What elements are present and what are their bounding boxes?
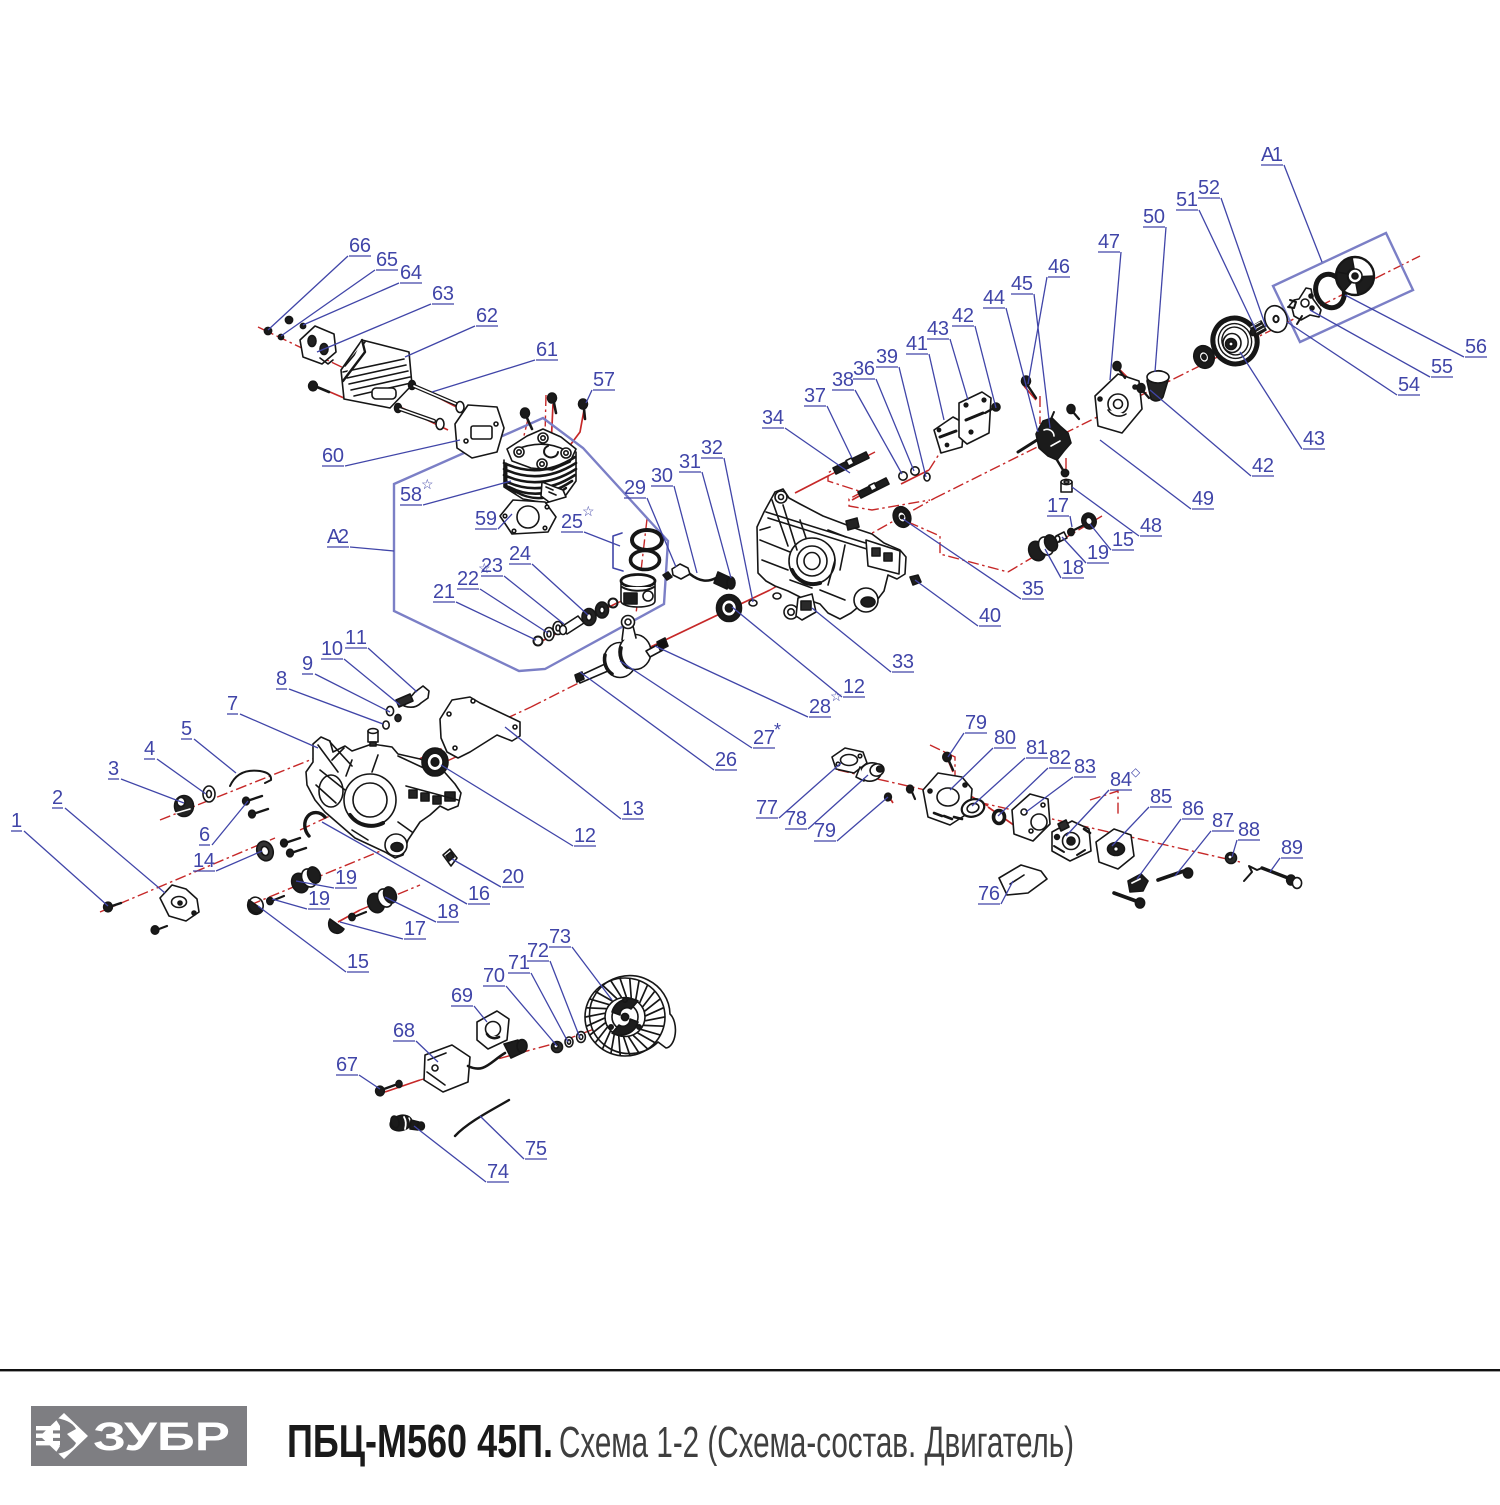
svg-text:◇: ◇ [1131,765,1141,779]
svg-text:54: 54 [1398,374,1420,396]
svg-text:16: 16 [468,883,490,905]
svg-text:6: 6 [199,824,210,846]
svg-text:8: 8 [276,668,287,690]
svg-text:62: 62 [476,305,498,327]
svg-text:84: 84 [1110,769,1132,791]
svg-text:ЗУБР: ЗУБР [93,1415,230,1459]
svg-text:37: 37 [804,385,826,407]
svg-text:51: 51 [1176,189,1198,211]
svg-text:42: 42 [1252,455,1274,477]
svg-text:56: 56 [1465,336,1487,358]
svg-text:58: 58 [400,484,422,506]
svg-text:3: 3 [108,758,119,780]
svg-text:23: 23 [481,555,503,577]
svg-text:15: 15 [1112,529,1134,551]
svg-text:68: 68 [393,1020,415,1042]
svg-text:18: 18 [1062,557,1084,579]
svg-text:17: 17 [1047,495,1069,517]
svg-text:67: 67 [336,1054,358,1076]
svg-text:29: 29 [624,477,646,499]
svg-text:12: 12 [574,825,596,847]
svg-text:82: 82 [1049,747,1071,769]
svg-text:☆: ☆ [421,476,434,492]
svg-text:27: 27 [753,727,775,749]
svg-text:75: 75 [525,1138,547,1160]
svg-text:12: 12 [843,676,865,698]
svg-text:35: 35 [1022,578,1044,600]
svg-text:19: 19 [308,888,330,910]
svg-text:57: 57 [593,369,615,391]
svg-text:41: 41 [906,333,928,355]
svg-text:21: 21 [433,581,455,603]
svg-text:64: 64 [400,262,422,284]
svg-text:81: 81 [1026,737,1048,759]
svg-text:38: 38 [832,369,854,391]
svg-text:42: 42 [952,305,974,327]
svg-text:1: 1 [11,810,22,832]
svg-text:48: 48 [1140,515,1162,537]
svg-text:7: 7 [227,693,238,715]
svg-text:19: 19 [1087,542,1109,564]
svg-text:ПБЦ-М560 45П.Схема 1-2 (Схема-: ПБЦ-М560 45П.Схема 1-2 (Схема-состав. Дв… [287,1415,1074,1467]
svg-text:50: 50 [1143,206,1165,228]
svg-text:52: 52 [1198,177,1220,199]
svg-text:73: 73 [549,926,571,948]
svg-text:33: 33 [892,651,914,673]
svg-text:A2: A2 [327,526,349,548]
svg-text:66: 66 [349,235,371,257]
svg-text:2: 2 [52,787,63,809]
svg-text:4: 4 [144,738,155,760]
svg-text:40: 40 [979,605,1001,627]
svg-text:28: 28 [809,696,831,718]
svg-text:31: 31 [679,451,701,473]
svg-text:22: 22 [457,568,479,590]
svg-text:11: 11 [345,627,367,649]
svg-text:10: 10 [321,638,343,660]
svg-text:19: 19 [335,867,357,889]
svg-text:80: 80 [994,727,1016,749]
svg-text:72: 72 [527,940,549,962]
svg-text:☆: ☆ [582,503,595,519]
svg-text:70: 70 [483,965,505,987]
svg-text:55: 55 [1431,356,1453,378]
svg-text:59: 59 [475,508,497,530]
svg-text:13: 13 [622,798,644,820]
svg-text:79: 79 [814,820,836,842]
svg-text:49: 49 [1192,488,1214,510]
svg-text:24: 24 [509,543,531,565]
svg-text:85: 85 [1150,786,1172,808]
svg-text:63: 63 [432,283,454,305]
svg-text:17: 17 [404,918,426,940]
svg-text:86: 86 [1182,798,1204,820]
svg-text:76: 76 [978,883,1000,905]
svg-text:*: * [774,720,781,740]
svg-text:89: 89 [1281,837,1303,859]
svg-text:20: 20 [502,866,524,888]
svg-text:45: 45 [1011,273,1033,295]
svg-text:69: 69 [451,985,473,1007]
svg-text:74: 74 [487,1161,509,1183]
svg-text:14: 14 [193,850,215,872]
svg-text:A1: A1 [1261,144,1283,166]
svg-text:25: 25 [561,511,583,533]
svg-text:77: 77 [756,797,778,819]
svg-text:32: 32 [701,437,723,459]
svg-text:65: 65 [376,249,398,271]
svg-text:44: 44 [983,287,1005,309]
svg-text:18: 18 [437,901,459,923]
svg-text:47: 47 [1098,231,1120,253]
svg-text:83: 83 [1074,756,1096,778]
svg-text:26: 26 [715,749,737,771]
svg-text:46: 46 [1048,256,1070,278]
svg-text:60: 60 [322,445,344,467]
svg-text:43: 43 [927,318,949,340]
svg-text:9: 9 [302,653,313,675]
svg-text:5: 5 [181,718,192,740]
svg-text:36: 36 [853,358,875,380]
svg-text:88: 88 [1238,819,1260,841]
svg-text:61: 61 [536,339,558,361]
svg-text:39: 39 [876,346,898,368]
svg-text:34: 34 [762,407,784,429]
svg-text:87: 87 [1212,810,1234,832]
svg-text:79: 79 [965,712,987,734]
svg-text:30: 30 [651,465,673,487]
svg-text:15: 15 [347,951,369,973]
svg-text:43: 43 [1303,428,1325,450]
svg-text:78: 78 [785,808,807,830]
